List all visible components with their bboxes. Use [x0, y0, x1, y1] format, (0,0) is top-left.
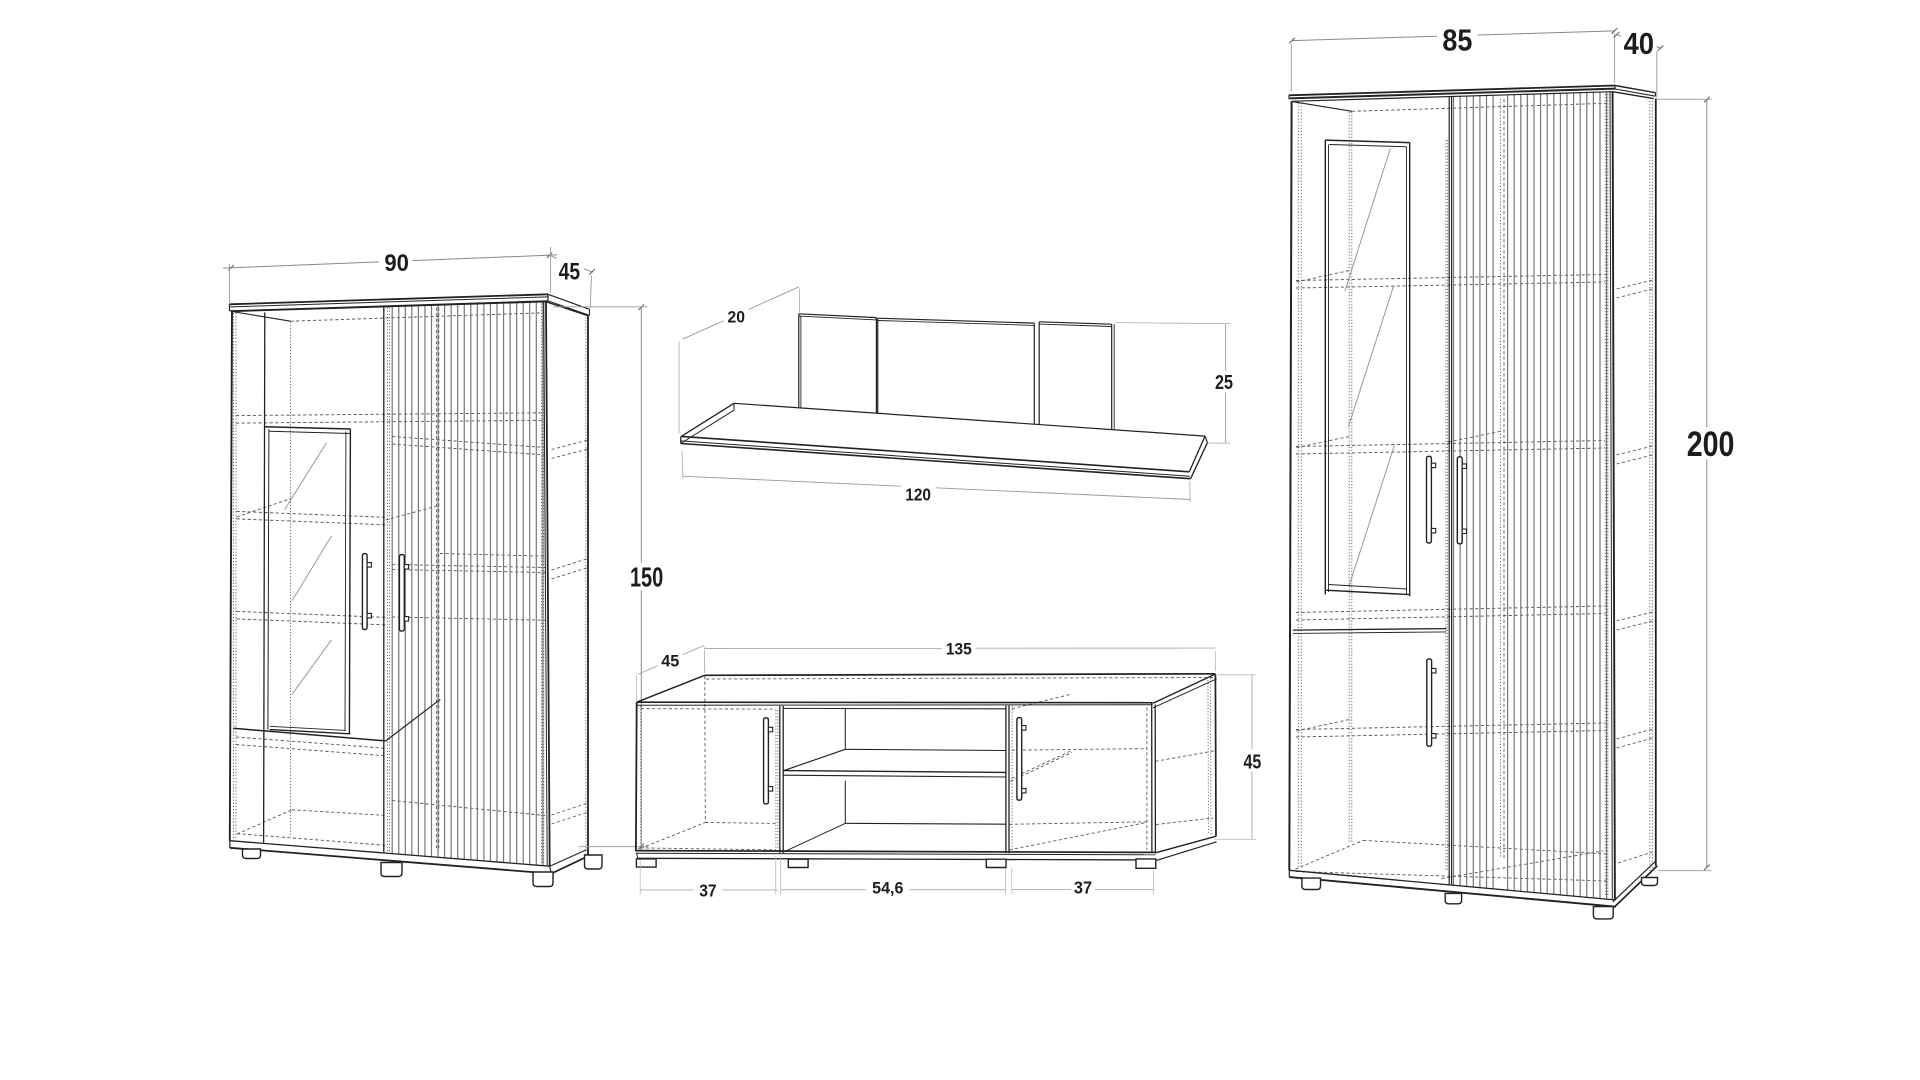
svg-text:85: 85 — [1442, 23, 1472, 57]
svg-text:200: 200 — [1687, 425, 1735, 464]
svg-text:150: 150 — [630, 562, 663, 593]
svg-text:45: 45 — [559, 258, 581, 285]
svg-text:25: 25 — [1215, 372, 1233, 394]
svg-text:90: 90 — [384, 250, 409, 277]
svg-text:120: 120 — [905, 485, 931, 505]
svg-text:135: 135 — [946, 639, 972, 658]
svg-text:20: 20 — [728, 309, 746, 327]
svg-text:45: 45 — [661, 653, 679, 671]
svg-text:40: 40 — [1624, 27, 1655, 61]
svg-text:45: 45 — [1244, 752, 1262, 774]
svg-text:37: 37 — [699, 880, 717, 900]
svg-text:37: 37 — [1074, 877, 1092, 897]
svg-text:54,6: 54,6 — [872, 879, 903, 897]
